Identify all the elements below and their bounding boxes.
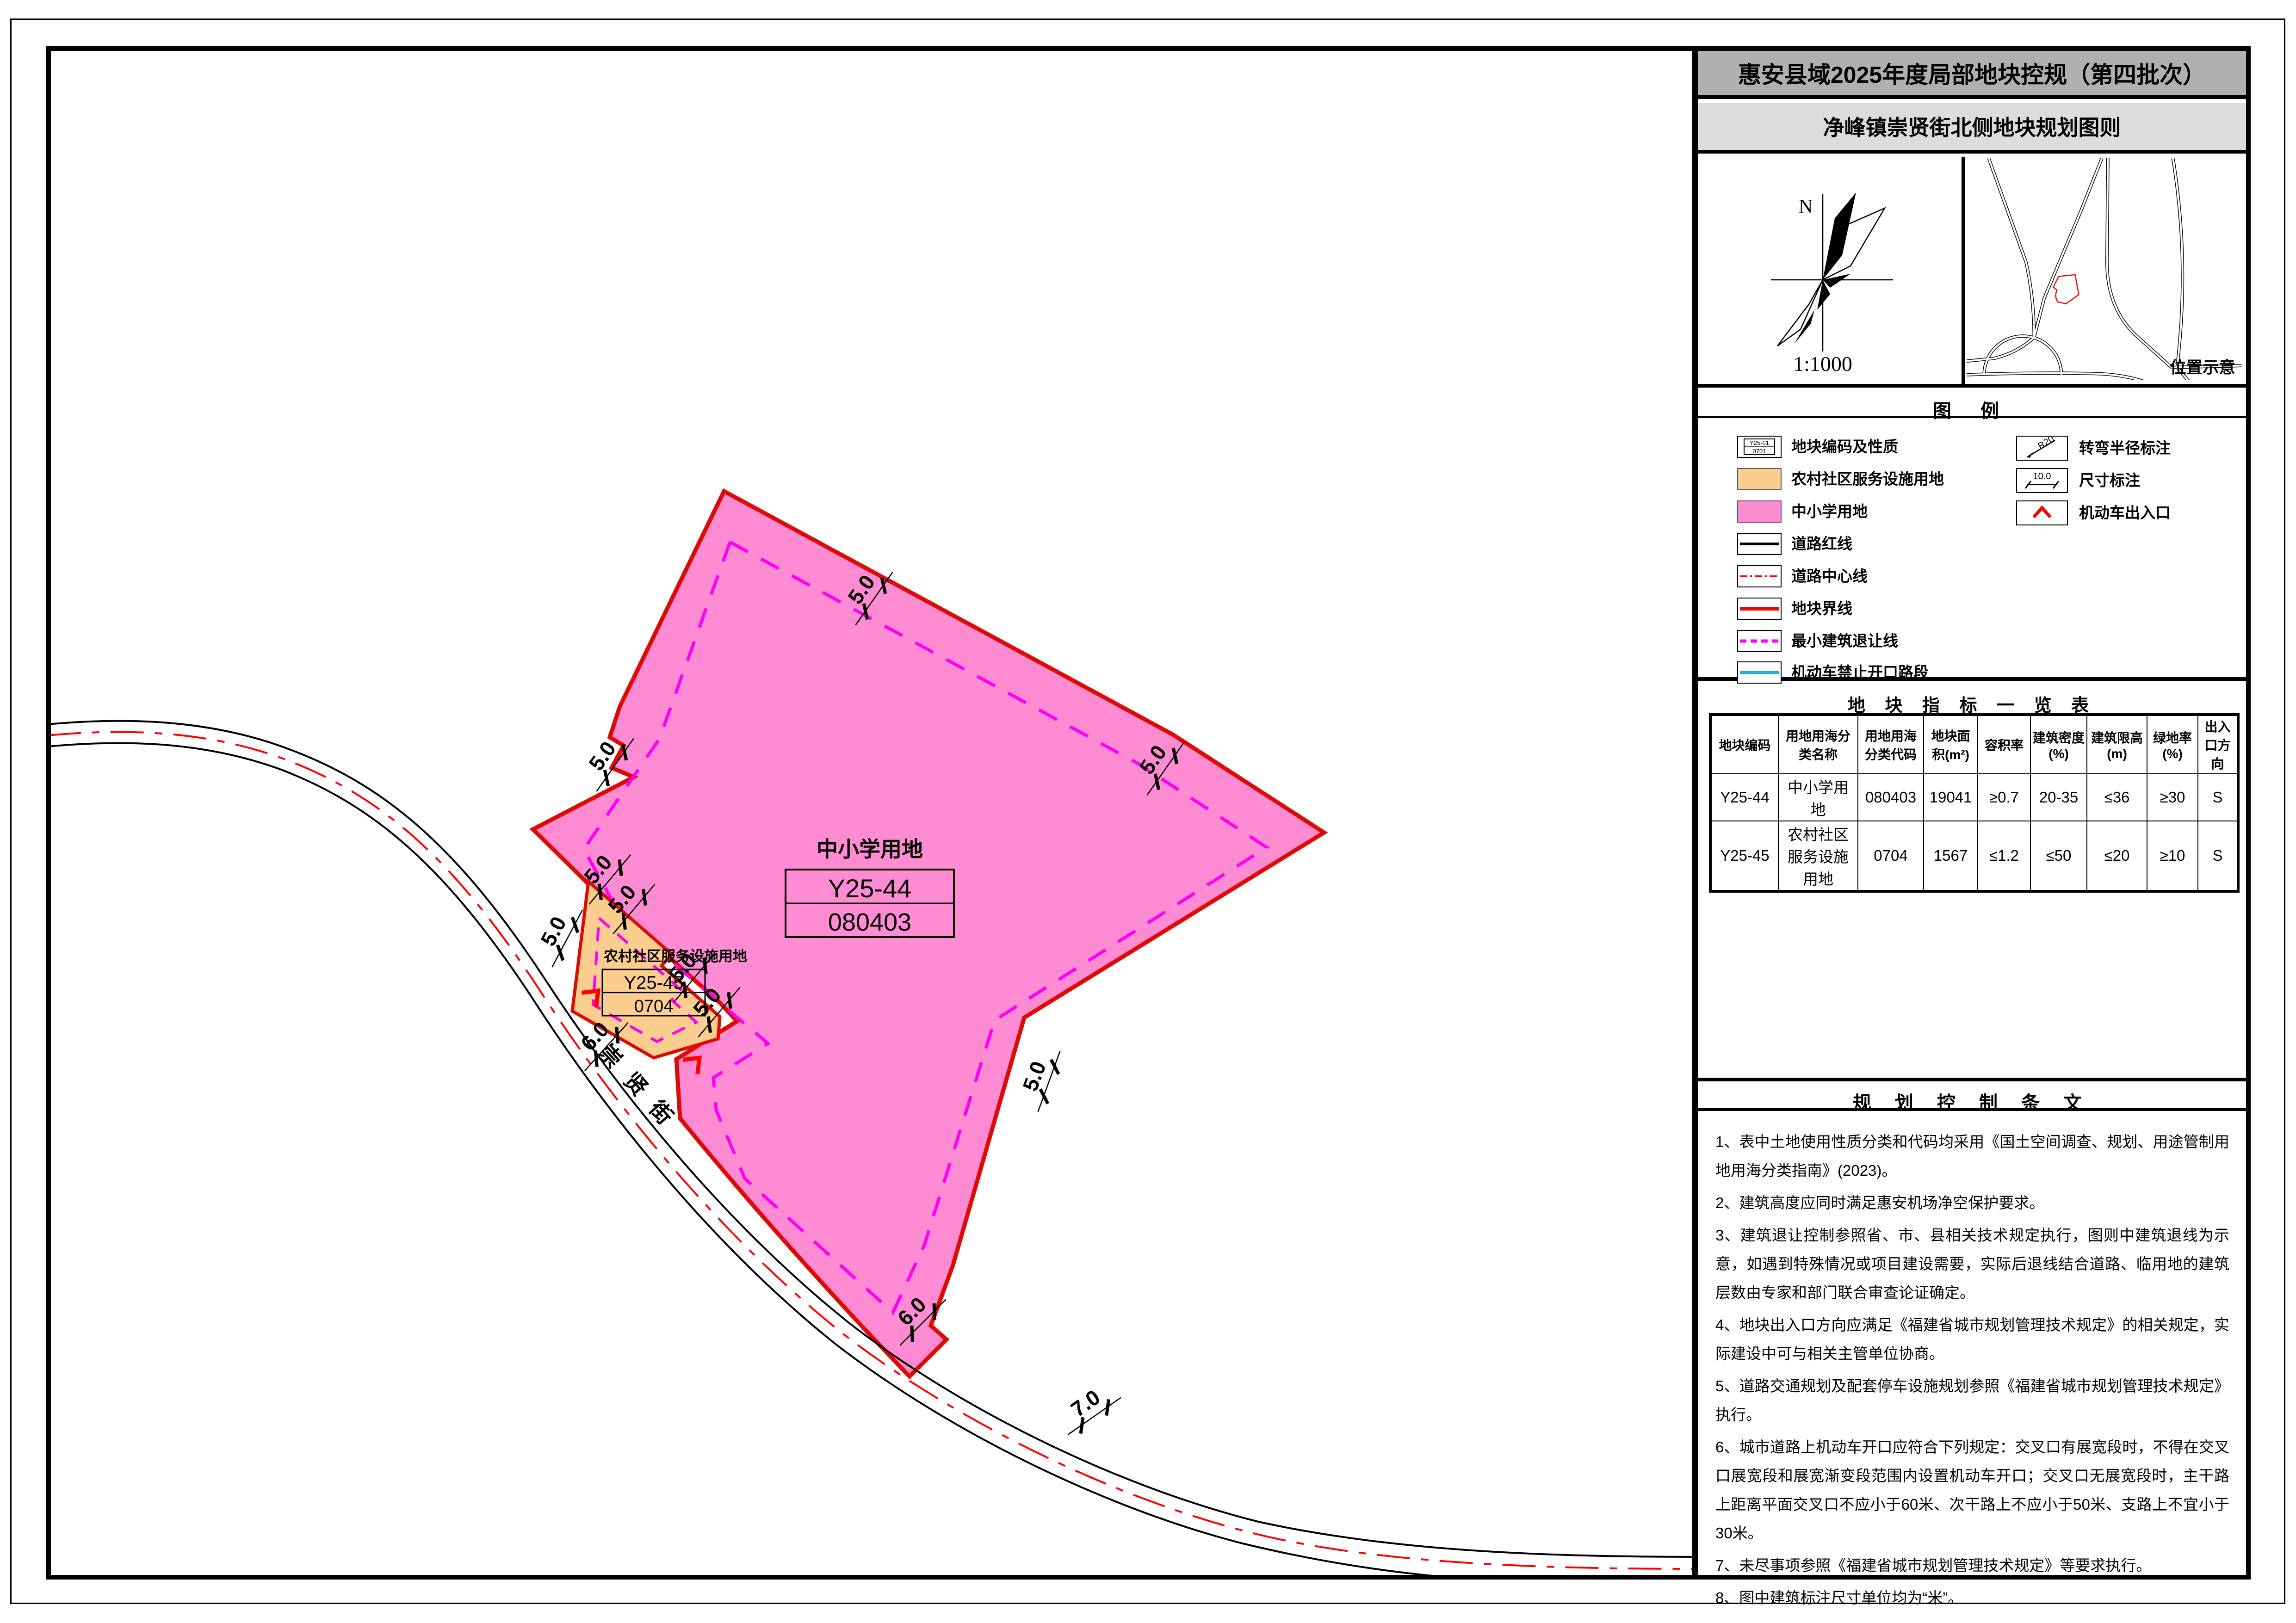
map-scale: 1:1000 bbox=[1793, 352, 1852, 376]
rural-parcel-class-code: 0704 bbox=[634, 997, 674, 1016]
cell: Y25-45 bbox=[1710, 821, 1778, 891]
indicator-table-title: 地 块 指 标 一 览 表 bbox=[1698, 685, 2246, 716]
col-header: 出入口方向 bbox=[2198, 715, 2238, 774]
note-item: 4、地块出入口方向应满足《福建省城市规划管理技术规定》的相关规定，实际建设中可与… bbox=[1715, 1311, 2229, 1368]
legend-vehicle-entrance-icon bbox=[2016, 500, 2068, 525]
cell: 中小学用地 bbox=[1778, 774, 1858, 821]
legend-label: 地块编码及性质 bbox=[1791, 436, 1898, 458]
legend-label: 转弯半径标注 bbox=[2079, 436, 2171, 461]
orientation-row: N 1:1000 bbox=[1698, 157, 2246, 388]
legend-rural-swatch bbox=[1737, 468, 1782, 490]
svg-text:中小学用地: 中小学用地 bbox=[817, 837, 923, 861]
note-item: 7、未尽事项参照《福建省城市规划管理技术规定》等要求执行。 bbox=[1715, 1551, 2229, 1580]
legend-parcel-boundary-icon bbox=[1737, 598, 1782, 620]
legend-dimension-icon: 10.0 bbox=[2016, 468, 2068, 493]
legend-label: 机动车出入口 bbox=[2079, 500, 2171, 525]
svg-text:0701: 0701 bbox=[1753, 448, 1766, 455]
col-header: 用地用海分类代码 bbox=[1858, 715, 1924, 774]
cell: ≤1.2 bbox=[1978, 821, 2030, 891]
sheet-subtitle-bar: 净峰镇崇贤街北侧地块规划图则 bbox=[1698, 103, 2246, 154]
legend-setback-line-icon bbox=[1737, 630, 1782, 652]
indicator-table: 地块编码 用地用海分类名称 用地用海分类代码 地块面积(m²) 容积率 建筑密度… bbox=[1709, 713, 2240, 893]
north-label: N bbox=[1799, 196, 1813, 217]
legend-label: 尺寸标注 bbox=[2079, 468, 2140, 493]
cell: 1567 bbox=[1924, 821, 1978, 891]
legend-label: 道路中心线 bbox=[1791, 565, 1868, 587]
svg-text:Y25-01: Y25-01 bbox=[1750, 439, 1769, 446]
legend-road-redline-icon bbox=[1737, 533, 1782, 555]
cell: ≥0.7 bbox=[1978, 774, 2030, 821]
svg-text:10.0: 10.0 bbox=[2033, 471, 2051, 481]
school-parcel-code: Y25-44 bbox=[828, 874, 912, 903]
sheet-subtitle: 净峰镇崇贤街北侧地块规划图则 bbox=[1823, 111, 2121, 142]
compass-box: N 1:1000 bbox=[1698, 157, 1965, 384]
notes-title: 规 划 控 制 条 文 bbox=[1698, 1085, 2246, 1111]
svg-text:5.0: 5.0 bbox=[1018, 1058, 1051, 1094]
legend-label: 中小学用地 bbox=[1791, 500, 1868, 523]
svg-text:5.0: 5.0 bbox=[536, 913, 571, 950]
sheet-title: 惠安县域2025年度局部地块控规（第四批次） bbox=[1738, 56, 2206, 90]
note-item: 5、道路交通规划及配套停车设施规划参照《福建省城市规划管理技术规定》执行。 bbox=[1715, 1372, 2229, 1429]
col-header: 容积率 bbox=[1978, 715, 2030, 774]
location-inset: 位置示意 bbox=[1965, 157, 2246, 384]
cell: ≤36 bbox=[2087, 774, 2147, 821]
notes-body: 1、表中土地使用性质分类和代码均采用《国土空间调查、规划、用途管制用地用海分类指… bbox=[1698, 1115, 2246, 1617]
col-header: 地块编码 bbox=[1710, 715, 1778, 774]
inset-caption: 位置示意 bbox=[2170, 358, 2235, 376]
cell: 农村社区服务设施用地 bbox=[1778, 821, 1858, 891]
note-item: 3、建筑退让控制参照省、市、县相关技术规定执行，图则中建筑退线为示意，如遇到特殊… bbox=[1715, 1221, 2229, 1307]
cell: Y25-44 bbox=[1710, 774, 1778, 821]
cell: 20-35 bbox=[2030, 774, 2087, 821]
cell: 0704 bbox=[1858, 821, 1924, 891]
legend-title: 图 例 bbox=[1698, 394, 2246, 418]
col-header: 建筑限高(m) bbox=[2087, 715, 2147, 774]
cell: ≥30 bbox=[2147, 774, 2198, 821]
inset-site-outline bbox=[2053, 275, 2079, 304]
table-row: Y25-44 中小学用地 080403 19041 ≥0.7 20-35 ≤36… bbox=[1710, 774, 2238, 821]
inset-roads bbox=[1967, 158, 2241, 380]
cell: ≥10 bbox=[2147, 821, 2198, 891]
legend-label: 最小建筑退让线 bbox=[1791, 630, 1898, 652]
indicator-table-section: 地 块 指 标 一 览 表 地块编码 用地用海分类名称 用地用海分类代码 地块面… bbox=[1698, 685, 2246, 1081]
sheet-title-bar: 惠安县域2025年度局部地块控规（第四批次） bbox=[1698, 51, 2246, 99]
cell: S bbox=[2198, 774, 2238, 821]
note-item: 1、表中土地使用性质分类和代码均采用《国土空间调查、规划、用途管制用地用海分类指… bbox=[1715, 1128, 2229, 1185]
street-name-label: 崇贤街 bbox=[594, 1040, 688, 1141]
legend-no-access-icon bbox=[1737, 661, 1782, 684]
cell: ≤50 bbox=[2030, 821, 2087, 891]
school-parcel-class-code: 080403 bbox=[828, 908, 911, 936]
legend-label: 地块界线 bbox=[1791, 598, 1852, 620]
legend-parcel-code-icon: Y25-01 0701 bbox=[1737, 436, 1782, 458]
dimension-5.0: 5.0 bbox=[1012, 1042, 1066, 1114]
col-header: 绿地率(%) bbox=[2147, 715, 2198, 774]
col-header: 地块面积(m²) bbox=[1924, 715, 1978, 774]
cell: ≤20 bbox=[2087, 821, 2147, 891]
table-row: Y25-45 农村社区服务设施用地 0704 1567 ≤1.2 ≤50 ≤20… bbox=[1710, 821, 2238, 891]
legend-school-swatch bbox=[1737, 500, 1782, 523]
parcel-school-Y25-44 bbox=[533, 491, 1324, 1376]
legend-road-centerline-icon bbox=[1737, 565, 1782, 587]
cell: 080403 bbox=[1858, 774, 1924, 821]
svg-text:7.0: 7.0 bbox=[1066, 1385, 1104, 1421]
note-item: 2、建筑高度应同时满足惠安机场净空保护要求。 bbox=[1715, 1189, 2229, 1217]
plan-map: 崇贤街 中小学用地 Y25-44 080403 农村社区服务设施用地 Y25-4… bbox=[46, 46, 1696, 1580]
north-arrow-icon: N 1:1000 bbox=[1698, 157, 1962, 384]
table-header-row: 地块编码 用地用海分类名称 用地用海分类代码 地块面积(m²) 容积率 建筑密度… bbox=[1710, 715, 2238, 774]
legend-section: 图 例 Y25-01 0701 地块编码及性质 农村社区服务设施用地 中小学用地… bbox=[1698, 391, 2246, 681]
note-item: 6、城市道路上机动车开口应符合下列规定：交叉口有展宽段时，不得在交叉口展宽段和展… bbox=[1715, 1433, 2229, 1548]
info-panel: 惠安县域2025年度局部地块控规（第四批次） 净峰镇崇贤街北侧地块规划图则 N … bbox=[1693, 46, 2251, 1580]
legend-label: 机动车禁止开口路段 bbox=[1791, 661, 1929, 684]
dimension-7.0: 7.0 bbox=[1052, 1375, 1125, 1440]
col-header: 用地用海分类名称 bbox=[1778, 715, 1858, 774]
legend-turn-radius-icon: R20 bbox=[2016, 436, 2068, 461]
legend-label: 道路红线 bbox=[1791, 533, 1852, 555]
cell: 19041 bbox=[1924, 774, 1978, 821]
cell: S bbox=[2198, 821, 2238, 891]
note-item: 8、图中建筑标注尺寸单位均为“米”。 bbox=[1715, 1584, 2229, 1612]
col-header: 建筑密度(%) bbox=[2030, 715, 2087, 774]
legend-label: 农村社区服务设施用地 bbox=[1791, 468, 1944, 490]
